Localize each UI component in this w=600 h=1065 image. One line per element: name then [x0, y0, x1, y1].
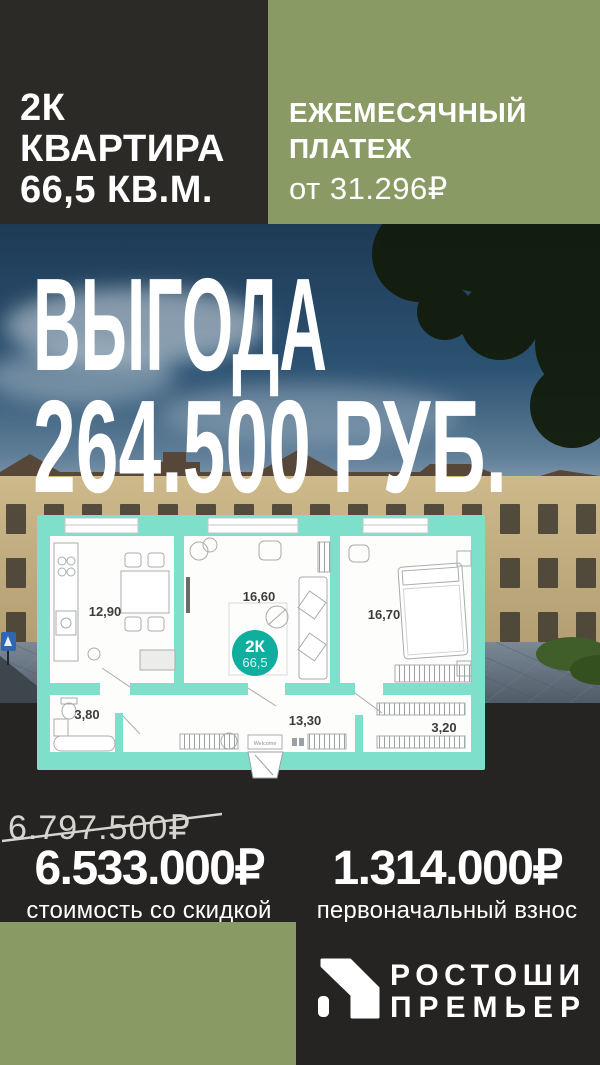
brand-name-line2: ПРЕМЬЕР	[390, 991, 580, 1024]
payment-value: от 31.296₽	[289, 170, 600, 208]
payment-title-line2: ПЛАТЕЖ	[289, 131, 600, 167]
down-payment-label: первоначальный взнос	[316, 897, 578, 925]
benefit-line2: 264.500 РУБ.	[33, 373, 507, 520]
room-label-hallway: 13,30	[289, 713, 322, 728]
brand-logo-icon	[318, 960, 378, 1017]
room-label-living: 16,60	[243, 589, 276, 604]
plan-badge-type: 2К	[245, 637, 265, 656]
room-label-bathroom: 3,80	[74, 707, 99, 722]
doormat-label: Welcome	[254, 741, 277, 747]
discount-price-block: 6.533.000₽ стоимость со скидкой	[18, 843, 280, 925]
footer-green-panel	[0, 922, 296, 1065]
plan-badge: 2К 66,5	[232, 630, 278, 676]
floor-plan: 12,90 16,60 16,70 3,80 13,30 3,20 Welcom…	[37, 515, 485, 790]
brand-name-line1: РОСТОШИ	[390, 959, 580, 992]
discount-price-value: 6.533.000₽	[18, 843, 280, 895]
room-label-wardrobe: 3,20	[431, 720, 456, 735]
discount-price-label: стоимость со скидкой	[18, 897, 280, 925]
unit-area-label: 66,5 КВ.М.	[20, 170, 268, 211]
down-payment-block: 1.314.000₽ первоначальный взнос	[316, 843, 578, 925]
unit-type-label: КВАРТИРА	[20, 129, 268, 170]
promo-poster: 2К КВАРТИРА 66,5 КВ.М. ЕЖЕМЕСЯЧНЫЙ ПЛАТЕ…	[0, 0, 600, 1065]
payment-header-block: ЕЖЕМЕСЯЧНЫЙ ПЛАТЕЖ от 31.296₽	[268, 0, 600, 224]
balcony-door	[248, 752, 283, 778]
payment-title-line1: ЕЖЕМЕСЯЧНЫЙ	[289, 95, 600, 131]
unit-header-block: 2К КВАРТИРА 66,5 КВ.М.	[0, 0, 268, 224]
brand-logo-block: РОСТОШИ ПРЕМЬЕР	[296, 922, 600, 1065]
down-payment-value: 1.314.000₽	[316, 843, 578, 895]
plan-badge-area: 66,5	[242, 655, 267, 670]
brand-logo: РОСТОШИ ПРЕМЬЕР	[296, 922, 600, 1065]
room-label-kitchen: 12,90	[89, 604, 122, 619]
unit-rooms-label: 2К	[20, 88, 268, 129]
plan-windows	[65, 518, 428, 533]
room-label-bedroom: 16,70	[368, 607, 401, 622]
